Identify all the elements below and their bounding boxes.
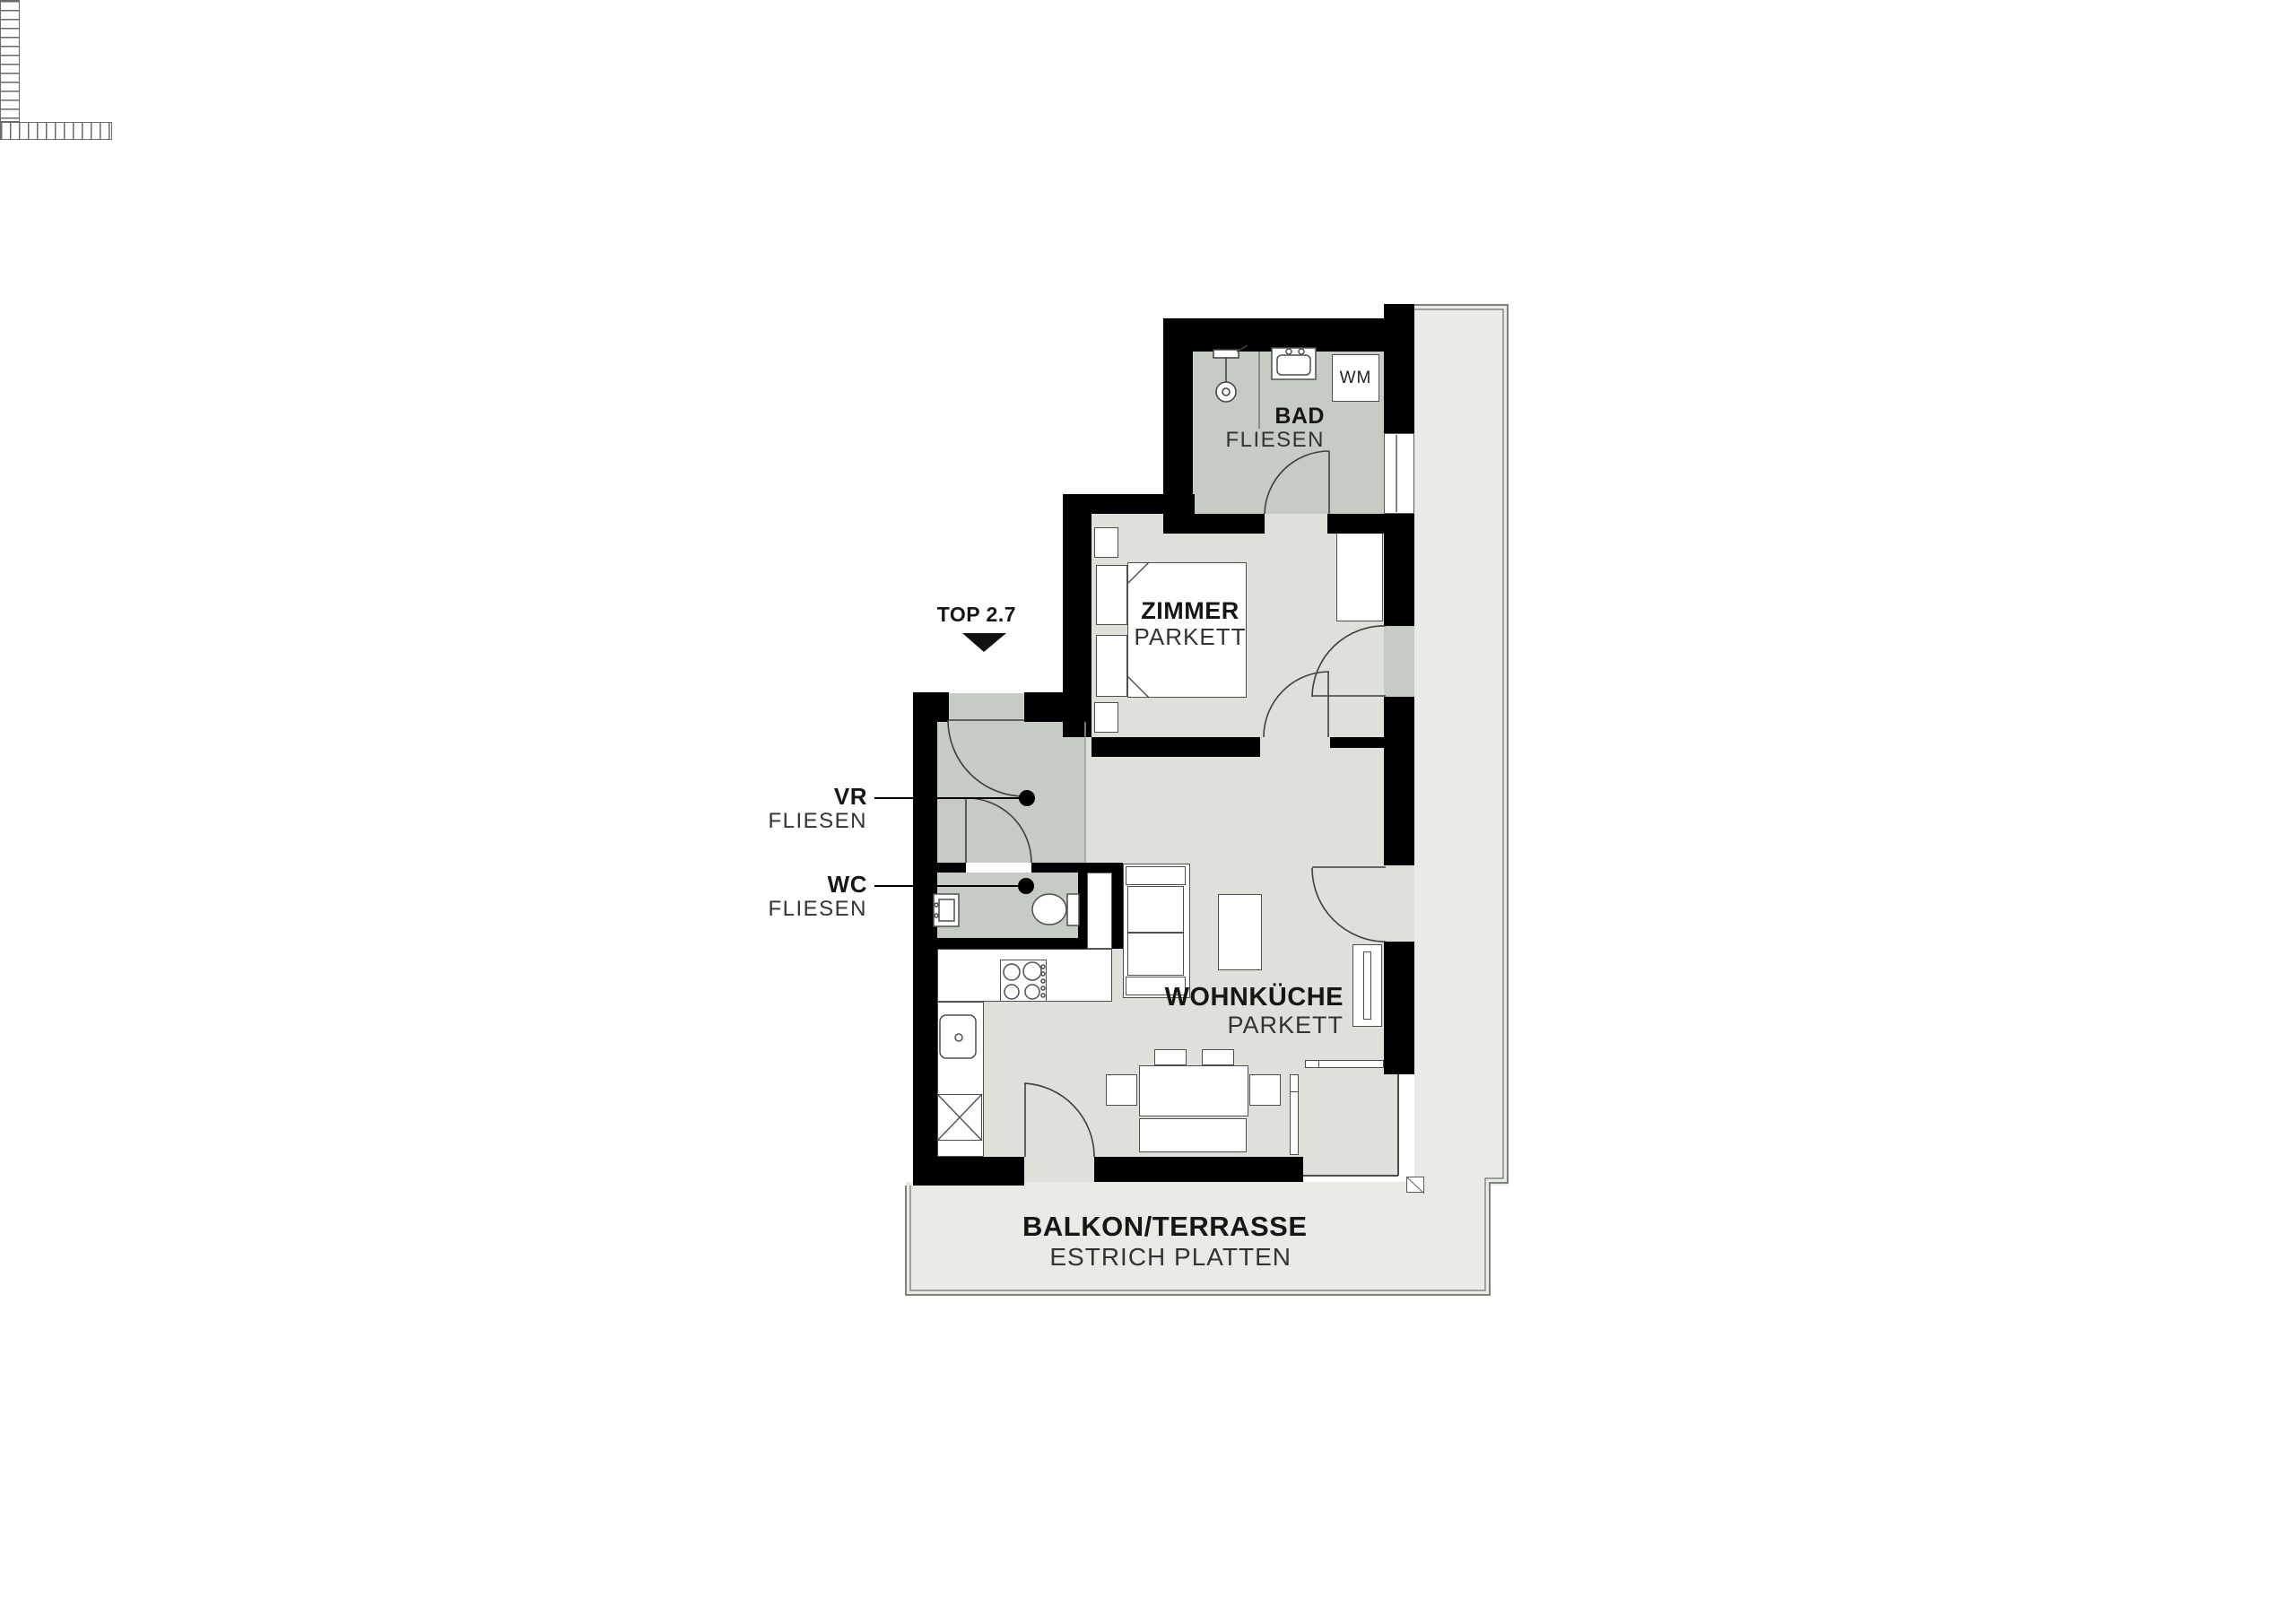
- room-name: ZIMMER: [1109, 597, 1271, 624]
- chair: [1154, 1049, 1187, 1065]
- drainage-grate: [0, 122, 112, 140]
- wall: [1163, 514, 1265, 534]
- room-name: VR: [742, 784, 867, 810]
- wall: [1094, 1157, 1303, 1182]
- entrance-threshold: [949, 693, 1024, 722]
- wardrobe: [1336, 525, 1383, 621]
- wall: [1384, 514, 1414, 626]
- floor-plan: WM: [0, 0, 2296, 1607]
- washing-machine: WM: [1332, 354, 1379, 402]
- terrace-floor: [1414, 304, 1508, 1186]
- wall: [937, 863, 966, 873]
- wall: [1330, 737, 1386, 748]
- chair: [1202, 1049, 1234, 1065]
- window-panel: [1290, 1074, 1299, 1155]
- nightstand: [1094, 702, 1118, 733]
- living-corner-floor: [1298, 1067, 1398, 1177]
- window: [1384, 433, 1414, 514]
- wall: [1063, 494, 1091, 737]
- room-name: WC: [742, 872, 867, 898]
- room-finish: ESTRICH PLATTEN: [1022, 1243, 1291, 1271]
- wall: [913, 1157, 1024, 1186]
- wall: [1024, 692, 1065, 722]
- window-panel-divider: [1290, 1091, 1299, 1092]
- room-name: WOHNKÜCHE: [1128, 983, 1344, 1012]
- room-finish: FLIESEN: [1190, 429, 1325, 453]
- room-label-balkon: BALKON/TERRASSE ESTRICH PLATTEN: [1022, 1212, 1291, 1271]
- room-label-vr: VR FLIESEN: [742, 784, 867, 834]
- window-panel: [1305, 1060, 1384, 1068]
- wall: [1327, 514, 1384, 534]
- shaft: [1087, 873, 1112, 949]
- entrance-arrow-icon: [962, 633, 1006, 652]
- wall: [913, 722, 937, 1186]
- nightstand: [1094, 527, 1118, 558]
- room-finish: PARKETT: [1109, 624, 1271, 650]
- room-finish: FLIESEN: [742, 898, 867, 922]
- room-label-zimmer: ZIMMER PARKETT: [1109, 597, 1271, 650]
- drainage-grate-corner: [1406, 1177, 1424, 1193]
- room-name: BAD: [1190, 404, 1325, 429]
- appliance-x-marker: [937, 1094, 982, 1141]
- cooktop: [1000, 960, 1047, 1002]
- drainage-grate: [0, 0, 20, 122]
- wall: [1091, 737, 1260, 757]
- sofa-armrest: [1126, 866, 1186, 885]
- wall: [1031, 863, 1123, 873]
- wc-floor: [937, 873, 1078, 938]
- unit-label: TOP 2.7: [909, 604, 1016, 627]
- room-label-wohnkueche: WOHNKÜCHE PARKETT: [1128, 983, 1344, 1039]
- room-finish: PARKETT: [1128, 1012, 1344, 1038]
- coffee-table: [1218, 894, 1262, 970]
- sofa-cushion: [1127, 933, 1184, 976]
- chair: [1106, 1074, 1137, 1106]
- wall: [913, 938, 1087, 949]
- room-finish: FLIESEN: [742, 810, 867, 834]
- radiator-slot: [1363, 951, 1371, 1020]
- wall: [1112, 863, 1123, 949]
- sofa-cushion: [1127, 886, 1184, 933]
- washing-machine-label: WM: [1340, 369, 1372, 388]
- wall: [1384, 304, 1414, 433]
- wall: [1078, 873, 1087, 938]
- zimmer-terrace-door-threshold: [1384, 626, 1414, 697]
- wall: [1163, 318, 1414, 352]
- living-terrace-door-threshold: [1384, 865, 1414, 942]
- vr-floor: [937, 722, 1085, 863]
- chair: [1249, 1074, 1281, 1106]
- wall: [1384, 697, 1414, 865]
- dining-table: [1139, 1065, 1248, 1116]
- window-panel-divider: [1318, 1060, 1319, 1068]
- wall: [1163, 318, 1193, 514]
- room-label-wc: WC FLIESEN: [742, 872, 867, 922]
- room-label-bad: BAD FLIESEN: [1190, 404, 1325, 453]
- room-name: BALKON/TERRASSE: [1022, 1212, 1291, 1243]
- wall: [1384, 942, 1414, 1074]
- bench: [1139, 1118, 1247, 1152]
- unit-number: TOP 2.7: [937, 603, 1016, 626]
- wall: [913, 692, 949, 722]
